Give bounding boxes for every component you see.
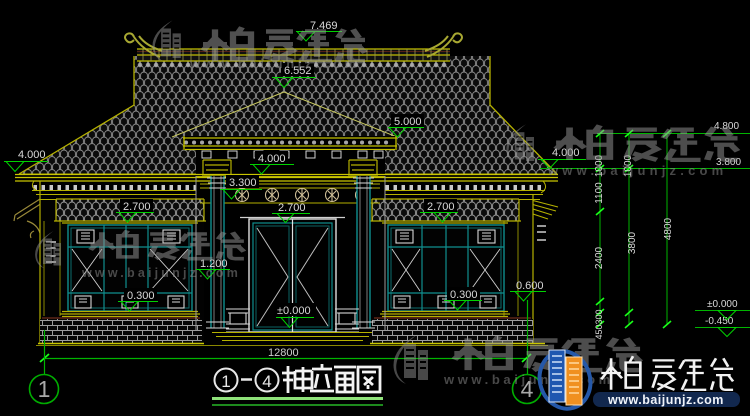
svg-text:±0.000: ±0.000	[707, 299, 738, 310]
svg-text:2.700: 2.700	[123, 201, 151, 213]
svg-text:450: 450	[594, 324, 604, 339]
svg-text:1100: 1100	[594, 182, 605, 204]
svg-text:±0.000: ±0.000	[277, 305, 311, 317]
svg-text:300: 300	[594, 309, 604, 324]
svg-text:4: 4	[262, 372, 271, 391]
svg-text:4.000: 4.000	[18, 149, 46, 161]
svg-text:www.baijunjz.com: www.baijunjz.com	[607, 393, 724, 407]
svg-text:4.000: 4.000	[258, 153, 286, 165]
svg-text:0.600: 0.600	[516, 280, 544, 292]
svg-text:4800: 4800	[663, 217, 674, 240]
svg-text:3800: 3800	[627, 231, 638, 254]
svg-text:www.baijunjz.com: www.baijunjz.com	[547, 163, 727, 178]
svg-text:5.000: 5.000	[394, 116, 422, 128]
svg-text:0.300: 0.300	[450, 289, 478, 301]
svg-text:1: 1	[221, 372, 230, 391]
svg-text:12800: 12800	[268, 347, 299, 359]
svg-text:0.300: 0.300	[127, 290, 155, 302]
svg-text:www.baijunjz.com: www.baijunjz.com	[81, 266, 241, 280]
svg-text:1: 1	[38, 376, 51, 402]
svg-text:3.300: 3.300	[229, 177, 257, 189]
svg-text:2.700: 2.700	[278, 202, 306, 214]
svg-text:2400: 2400	[594, 246, 605, 269]
svg-text:2.700: 2.700	[427, 201, 455, 213]
svg-text:www.baijunjz.com: www.baijunjz.com	[189, 56, 360, 71]
